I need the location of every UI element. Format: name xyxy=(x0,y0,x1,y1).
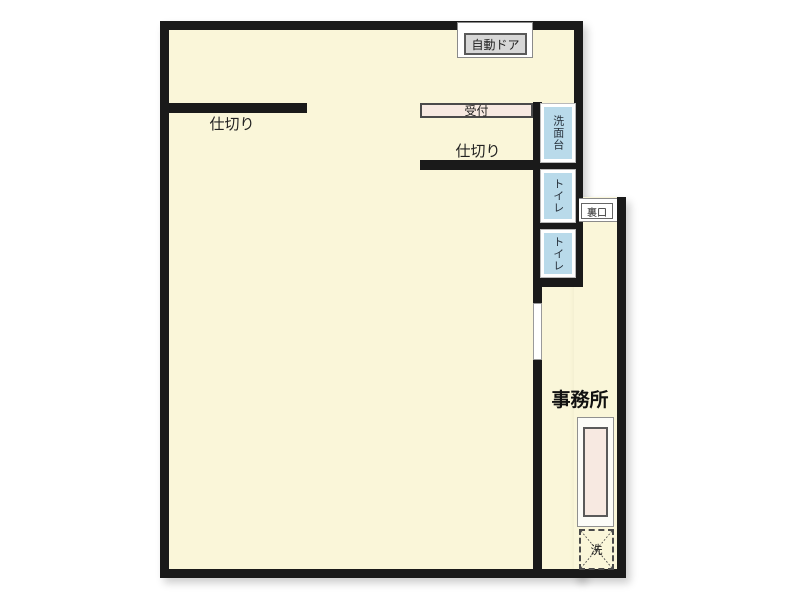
back-door-label: 裏口 xyxy=(581,203,613,219)
floorplan-canvas: 自動ドア 裏口 受付 洗面台 トイレ トイレ 洗 仕切り 仕切り xyxy=(0,0,801,599)
washing-machine-area: 洗 xyxy=(579,529,614,570)
office-label: 事務所 xyxy=(547,387,613,409)
wall-toilet-toilet xyxy=(533,222,583,230)
washstand-room: 洗面台 xyxy=(541,104,575,162)
toilet-room-1: トイレ xyxy=(541,170,575,222)
reception-counter: 受付 xyxy=(420,103,533,118)
wall-office-right xyxy=(617,197,626,578)
toilet-room-2: トイレ xyxy=(541,230,575,277)
back-door: 裏口 xyxy=(579,198,617,222)
office-desk xyxy=(577,417,614,527)
toilet1-text: トイレ xyxy=(552,178,564,214)
washstand-text: 洗面台 xyxy=(552,115,564,151)
wall-column-left-lower xyxy=(533,360,542,578)
partition-label-1: 仕切り xyxy=(202,114,262,132)
partition-label-2: 仕切り xyxy=(448,141,508,159)
wall-washstand-toilet xyxy=(533,162,583,170)
partition-wall-2 xyxy=(420,160,542,170)
partition-label-2-text: 仕切り xyxy=(455,140,500,161)
office-label-text: 事務所 xyxy=(551,385,608,412)
office-desk-top xyxy=(583,427,608,517)
washing-machine-text: 洗 xyxy=(590,541,602,558)
wall-right-main xyxy=(574,21,583,287)
partition-wall-1 xyxy=(160,103,307,113)
office-door-opening xyxy=(533,303,542,360)
auto-door-text: 自動ドア xyxy=(471,36,519,53)
partition-label-1-text: 仕切り xyxy=(209,113,254,134)
wall-below-toilet2 xyxy=(533,277,580,287)
toilet2-text: トイレ xyxy=(552,236,564,272)
auto-door: 自動ドア xyxy=(457,22,533,58)
back-door-text: 裏口 xyxy=(587,204,607,219)
auto-door-label: 自動ドア xyxy=(464,33,527,55)
wall-bottom xyxy=(160,569,626,578)
reception-text: 受付 xyxy=(464,102,488,119)
